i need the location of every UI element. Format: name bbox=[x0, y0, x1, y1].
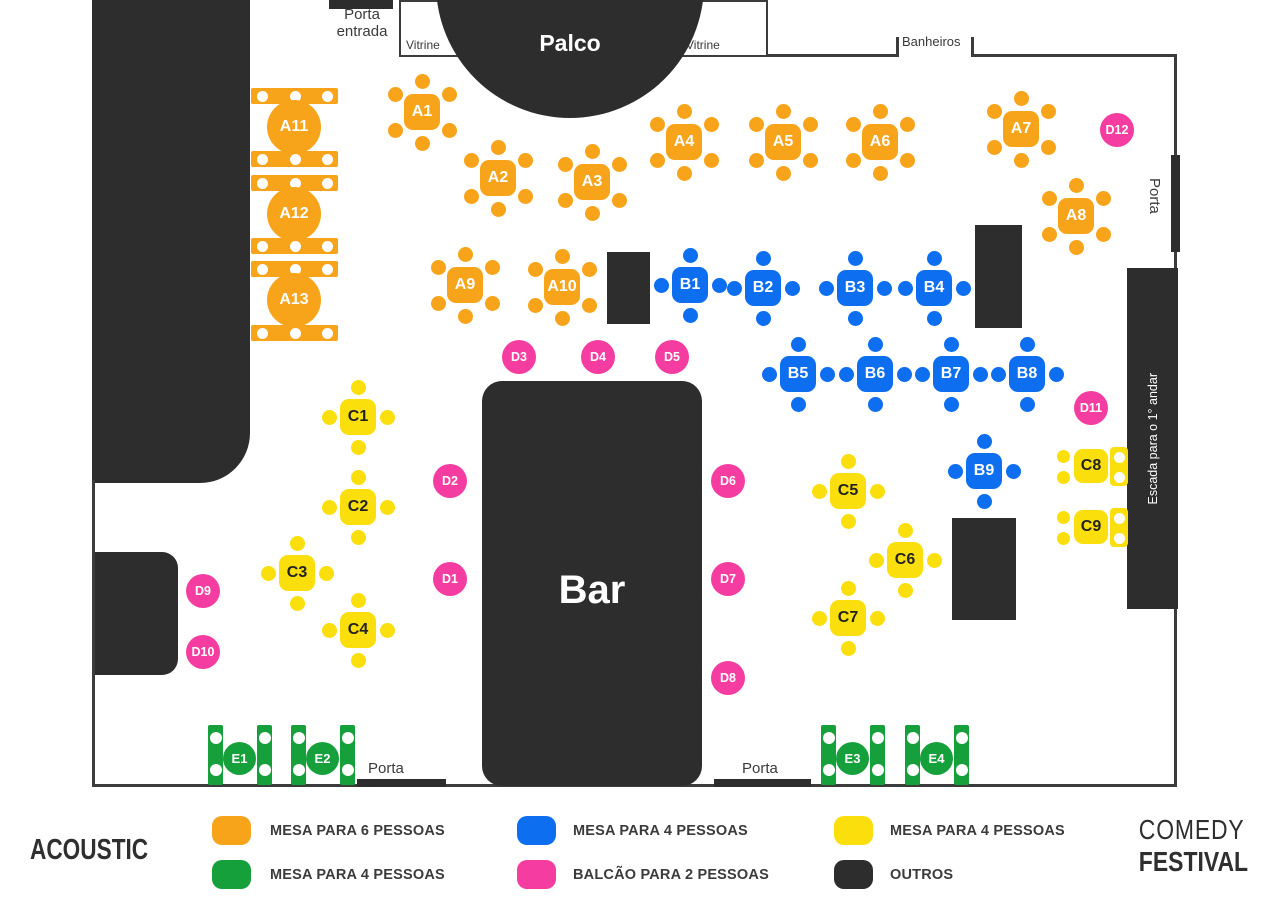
seat-hole bbox=[1114, 452, 1125, 463]
seat-dot bbox=[351, 653, 366, 668]
seat-dot bbox=[555, 311, 570, 326]
seat-dot bbox=[1049, 367, 1064, 382]
table-label: A10 bbox=[547, 278, 576, 296]
table-label: D4 bbox=[590, 350, 606, 364]
bench bbox=[821, 725, 836, 785]
seat-dot bbox=[776, 104, 791, 119]
seat-dot bbox=[900, 153, 915, 168]
counter-D6[interactable]: D6 bbox=[711, 464, 745, 498]
seat-dot bbox=[1006, 464, 1021, 479]
table-label: D5 bbox=[664, 350, 680, 364]
seat-dot bbox=[683, 308, 698, 323]
seat-dot bbox=[927, 553, 942, 568]
table-label: A13 bbox=[279, 291, 308, 309]
bench bbox=[291, 725, 306, 785]
seat-dot bbox=[870, 611, 885, 626]
seat-dot bbox=[485, 296, 500, 311]
seat-dot bbox=[612, 193, 627, 208]
seat-dot bbox=[749, 153, 764, 168]
table-A3[interactable]: A3 bbox=[574, 164, 610, 200]
table-A11[interactable]: A11 bbox=[267, 100, 321, 154]
bench bbox=[905, 725, 920, 785]
table-label: D6 bbox=[720, 474, 736, 488]
seat-dot bbox=[351, 593, 366, 608]
brand-comedy-festival: COMEDY FESTIVAL bbox=[1139, 816, 1237, 876]
legend-swatch-yellow bbox=[834, 816, 873, 845]
table-label: C1 bbox=[348, 408, 368, 426]
bench bbox=[954, 725, 969, 785]
seat-dot bbox=[898, 583, 913, 598]
seat-hole bbox=[823, 732, 835, 744]
legend-label-dark: OUTROS bbox=[890, 867, 953, 883]
table-E3[interactable]: E3 bbox=[820, 725, 886, 785]
seat-dot bbox=[677, 166, 692, 181]
seat-dot bbox=[1041, 140, 1056, 155]
table-E4[interactable]: E4 bbox=[904, 725, 970, 785]
table-label: D7 bbox=[720, 572, 736, 586]
seat-dot bbox=[944, 397, 959, 412]
seat-dot bbox=[704, 153, 719, 168]
seat-hole bbox=[907, 764, 919, 776]
seat-dot bbox=[791, 397, 806, 412]
seat-dot bbox=[898, 523, 913, 538]
table-label: A5 bbox=[773, 133, 793, 151]
table-label: C4 bbox=[348, 621, 368, 639]
table-label: D2 bbox=[442, 474, 458, 488]
table-label: C9 bbox=[1081, 518, 1101, 536]
legend-label-orange: MESA PARA 6 PESSOAS bbox=[270, 823, 445, 839]
table-label: A8 bbox=[1066, 207, 1086, 225]
seat-dot bbox=[431, 260, 446, 275]
table-label: B5 bbox=[788, 365, 808, 383]
seat-dot bbox=[1096, 227, 1111, 242]
bench bbox=[257, 725, 272, 785]
table-label: B7 bbox=[941, 365, 961, 383]
bench-row bbox=[251, 325, 338, 341]
seat-dot bbox=[841, 454, 856, 469]
seat-dot bbox=[870, 484, 885, 499]
counter-D3[interactable]: D3 bbox=[502, 340, 536, 374]
seat-hole bbox=[872, 732, 884, 744]
seat-hole bbox=[907, 732, 919, 744]
legend-label-green: MESA PARA 4 PESSOAS bbox=[270, 867, 445, 883]
seat-dot bbox=[820, 367, 835, 382]
table-A5[interactable]: A5 bbox=[765, 124, 801, 160]
counter-D8[interactable]: D8 bbox=[711, 661, 745, 695]
table-top: C8 bbox=[1074, 449, 1108, 483]
table-C2[interactable]: C2 bbox=[340, 489, 376, 525]
seat-dot bbox=[973, 367, 988, 382]
table-A8[interactable]: A8 bbox=[1058, 198, 1094, 234]
table-label: A9 bbox=[455, 276, 475, 294]
seat-dot bbox=[290, 596, 305, 611]
seat-hole bbox=[257, 154, 268, 165]
seat-dot bbox=[785, 281, 800, 296]
seat-dot bbox=[528, 262, 543, 277]
table-C1[interactable]: C1 bbox=[340, 399, 376, 435]
seat-hole bbox=[322, 241, 333, 252]
seat-dot bbox=[1020, 337, 1035, 352]
seat-dot bbox=[848, 311, 863, 326]
seat-dot bbox=[380, 623, 395, 638]
seat-dot bbox=[900, 117, 915, 132]
table-top: E3 bbox=[836, 742, 869, 775]
seat-dot bbox=[415, 74, 430, 89]
seat-dot bbox=[380, 500, 395, 515]
seat-dot bbox=[927, 251, 942, 266]
table-B3[interactable]: B3 bbox=[837, 270, 873, 306]
seat-hole bbox=[259, 764, 271, 776]
table-label: E4 bbox=[929, 751, 945, 766]
seat-dot bbox=[897, 367, 912, 382]
table-label: A1 bbox=[412, 103, 432, 121]
table-label: E3 bbox=[845, 751, 861, 766]
seat-hole bbox=[322, 91, 333, 102]
table-label: D3 bbox=[511, 350, 527, 364]
seat-dot bbox=[1042, 227, 1057, 242]
table-C4[interactable]: C4 bbox=[340, 612, 376, 648]
brand-comedy-line: COMEDY bbox=[1139, 816, 1237, 844]
seat-hole bbox=[956, 732, 968, 744]
seat-hole bbox=[322, 264, 333, 275]
table-label: E1 bbox=[232, 751, 248, 766]
table-C8[interactable]: C8 bbox=[1057, 444, 1129, 488]
seat-dot bbox=[677, 104, 692, 119]
seat-hole bbox=[290, 241, 301, 252]
seat-dot bbox=[351, 530, 366, 545]
table-label: D1 bbox=[442, 572, 458, 586]
seat-dot bbox=[654, 278, 669, 293]
seat-dot bbox=[1069, 240, 1084, 255]
legend-swatch-orange bbox=[212, 816, 251, 845]
seat-dot bbox=[388, 123, 403, 138]
table-B7[interactable]: B7 bbox=[933, 356, 969, 392]
seat-hole bbox=[257, 264, 268, 275]
seat-hole bbox=[1114, 533, 1125, 544]
seat-hole bbox=[257, 178, 268, 189]
seat-dot bbox=[927, 311, 942, 326]
seat-hole bbox=[322, 154, 333, 165]
table-label: C3 bbox=[287, 564, 307, 582]
seat-dot bbox=[846, 117, 861, 132]
seat-dot bbox=[1041, 104, 1056, 119]
counter-D11[interactable]: D11 bbox=[1074, 391, 1108, 425]
seat-dot bbox=[727, 281, 742, 296]
seat-dot bbox=[261, 566, 276, 581]
table-label: D9 bbox=[195, 584, 211, 598]
seat-dot bbox=[612, 157, 627, 172]
seat-dot bbox=[841, 641, 856, 656]
table-label: D10 bbox=[192, 645, 215, 659]
seat-dot bbox=[319, 566, 334, 581]
seat-dot bbox=[819, 281, 834, 296]
seat-dot bbox=[704, 117, 719, 132]
seat-dot bbox=[1096, 191, 1111, 206]
bench bbox=[870, 725, 885, 785]
seat-hole bbox=[290, 154, 301, 165]
bench bbox=[340, 725, 355, 785]
table-B2[interactable]: B2 bbox=[745, 270, 781, 306]
seat-dot bbox=[290, 536, 305, 551]
seat-dot bbox=[351, 440, 366, 455]
legend-swatch-pink bbox=[517, 860, 556, 889]
tables-layer: A1A2A3A4A5A6A7A8A9A10B1B2B3B4B5B6B7B8B9C… bbox=[0, 0, 1280, 904]
seat-dot bbox=[582, 298, 597, 313]
seat-dot bbox=[977, 434, 992, 449]
legend-label-blue: MESA PARA 4 PESSOAS bbox=[573, 823, 748, 839]
table-label: B1 bbox=[680, 276, 700, 294]
seat-hole bbox=[293, 732, 305, 744]
table-E2[interactable]: E2 bbox=[290, 725, 356, 785]
seat-dot bbox=[987, 104, 1002, 119]
seat-dot bbox=[431, 296, 446, 311]
seat-dot bbox=[869, 553, 884, 568]
table-B1[interactable]: B1 bbox=[672, 267, 708, 303]
counter-D5[interactable]: D5 bbox=[655, 340, 689, 374]
table-B8[interactable]: B8 bbox=[1009, 356, 1045, 392]
seat-dot bbox=[351, 380, 366, 395]
table-label: A3 bbox=[582, 173, 602, 191]
counter-D12[interactable]: D12 bbox=[1100, 113, 1134, 147]
seat-dot bbox=[762, 367, 777, 382]
bench bbox=[1110, 447, 1128, 486]
table-A10[interactable]: A10 bbox=[544, 269, 580, 305]
seat-dot bbox=[987, 140, 1002, 155]
seat-dot bbox=[650, 153, 665, 168]
table-label: A11 bbox=[280, 118, 308, 136]
table-top: E4 bbox=[920, 742, 953, 775]
table-A13[interactable]: A13 bbox=[267, 273, 321, 327]
seat-dot bbox=[650, 117, 665, 132]
seat-dot bbox=[868, 397, 883, 412]
seat-hole bbox=[342, 732, 354, 744]
table-A7[interactable]: A7 bbox=[1003, 111, 1039, 147]
table-C9[interactable]: C9 bbox=[1057, 505, 1129, 549]
table-A1[interactable]: A1 bbox=[404, 94, 440, 130]
seat-hole bbox=[257, 328, 268, 339]
seat-dot bbox=[1057, 511, 1070, 524]
counter-D4[interactable]: D4 bbox=[581, 340, 615, 374]
table-A9[interactable]: A9 bbox=[447, 267, 483, 303]
table-label: B3 bbox=[845, 279, 865, 297]
seat-dot bbox=[558, 157, 573, 172]
seat-dot bbox=[518, 189, 533, 204]
legend-swatch-green bbox=[212, 860, 251, 889]
seat-hole bbox=[259, 732, 271, 744]
seat-dot bbox=[464, 153, 479, 168]
seat-dot bbox=[1020, 397, 1035, 412]
seat-dot bbox=[442, 87, 457, 102]
counter-D1[interactable]: D1 bbox=[433, 562, 467, 596]
seat-hole bbox=[210, 732, 222, 744]
table-B6[interactable]: B6 bbox=[857, 356, 893, 392]
seat-dot bbox=[458, 309, 473, 324]
seat-dot bbox=[812, 611, 827, 626]
seat-dot bbox=[491, 140, 506, 155]
seat-dot bbox=[915, 367, 930, 382]
seat-dot bbox=[458, 247, 473, 262]
seat-dot bbox=[812, 484, 827, 499]
seat-dot bbox=[898, 281, 913, 296]
seat-dot bbox=[846, 153, 861, 168]
seat-dot bbox=[1069, 178, 1084, 193]
seat-dot bbox=[1057, 471, 1070, 484]
table-E1[interactable]: E1 bbox=[207, 725, 273, 785]
table-label: A6 bbox=[870, 133, 890, 151]
table-B9[interactable]: B9 bbox=[966, 453, 1002, 489]
seat-dot bbox=[841, 514, 856, 529]
table-label: D8 bbox=[720, 671, 736, 685]
table-top: C9 bbox=[1074, 510, 1108, 544]
table-C5[interactable]: C5 bbox=[830, 473, 866, 509]
table-label: A7 bbox=[1011, 120, 1031, 138]
seat-dot bbox=[351, 470, 366, 485]
seat-dot bbox=[491, 202, 506, 217]
table-label: B8 bbox=[1017, 365, 1037, 383]
table-A6[interactable]: A6 bbox=[862, 124, 898, 160]
seat-hole bbox=[322, 328, 333, 339]
seat-dot bbox=[791, 337, 806, 352]
seat-hole bbox=[290, 328, 301, 339]
table-A4[interactable]: A4 bbox=[666, 124, 702, 160]
seat-dot bbox=[683, 248, 698, 263]
legend-swatch-dark bbox=[834, 860, 873, 889]
seat-hole bbox=[322, 178, 333, 189]
seat-dot bbox=[873, 166, 888, 181]
seat-dot bbox=[322, 623, 337, 638]
seat-hole bbox=[293, 764, 305, 776]
table-A12[interactable]: A12 bbox=[267, 187, 321, 241]
table-C6[interactable]: C6 bbox=[887, 542, 923, 578]
seat-dot bbox=[756, 311, 771, 326]
seat-dot bbox=[582, 262, 597, 277]
seat-hole bbox=[210, 764, 222, 776]
table-label: C8 bbox=[1081, 457, 1101, 475]
seat-dot bbox=[868, 337, 883, 352]
seat-hole bbox=[257, 91, 268, 102]
table-label: A12 bbox=[279, 205, 308, 223]
seat-hole bbox=[342, 764, 354, 776]
seat-dot bbox=[1014, 91, 1029, 106]
legend-label-yellow: MESA PARA 4 PESSOAS bbox=[890, 823, 1065, 839]
legend-swatch-blue bbox=[517, 816, 556, 845]
table-top: E2 bbox=[306, 742, 339, 775]
table-label: B9 bbox=[974, 462, 994, 480]
seat-dot bbox=[991, 367, 1006, 382]
brand-festival-line: FESTIVAL bbox=[1139, 848, 1237, 876]
seat-dot bbox=[977, 494, 992, 509]
counter-D7[interactable]: D7 bbox=[711, 562, 745, 596]
seat-dot bbox=[873, 104, 888, 119]
table-label: B4 bbox=[924, 279, 944, 297]
table-label: D12 bbox=[1106, 123, 1129, 137]
seat-dot bbox=[749, 117, 764, 132]
seat-dot bbox=[712, 278, 727, 293]
seat-dot bbox=[848, 251, 863, 266]
table-label: B6 bbox=[865, 365, 885, 383]
seat-dot bbox=[841, 581, 856, 596]
seat-dot bbox=[776, 166, 791, 181]
brand-acoustic: ACOUSTIC bbox=[30, 834, 148, 867]
counter-D2[interactable]: D2 bbox=[433, 464, 467, 498]
seat-dot bbox=[518, 153, 533, 168]
table-A2[interactable]: A2 bbox=[480, 160, 516, 196]
seat-dot bbox=[380, 410, 395, 425]
seat-dot bbox=[1042, 191, 1057, 206]
seat-dot bbox=[322, 410, 337, 425]
table-C7[interactable]: C7 bbox=[830, 600, 866, 636]
seat-dot bbox=[558, 193, 573, 208]
legend-label-pink: BALCÃO PARA 2 PESSOAS bbox=[573, 867, 769, 883]
seat-hole bbox=[823, 764, 835, 776]
bench bbox=[208, 725, 223, 785]
seat-dot bbox=[585, 144, 600, 159]
seat-dot bbox=[528, 298, 543, 313]
seat-dot bbox=[877, 281, 892, 296]
seat-hole bbox=[1114, 513, 1125, 524]
seat-dot bbox=[803, 117, 818, 132]
seat-dot bbox=[442, 123, 457, 138]
counter-D10[interactable]: D10 bbox=[186, 635, 220, 669]
seat-dot bbox=[756, 251, 771, 266]
table-label: C6 bbox=[895, 551, 915, 569]
table-label: D11 bbox=[1080, 401, 1102, 415]
table-label: C7 bbox=[838, 609, 858, 627]
table-label: C2 bbox=[348, 498, 368, 516]
bench bbox=[1110, 508, 1128, 547]
table-B4[interactable]: B4 bbox=[916, 270, 952, 306]
seat-dot bbox=[1014, 153, 1029, 168]
seat-hole bbox=[872, 764, 884, 776]
seat-hole bbox=[257, 241, 268, 252]
floor-plan: Vitrine Vitrine Palco Banheiros Porta en… bbox=[0, 0, 1280, 904]
counter-D9[interactable]: D9 bbox=[186, 574, 220, 608]
table-label: A4 bbox=[674, 133, 694, 151]
seat-dot bbox=[415, 136, 430, 151]
table-label: B2 bbox=[753, 279, 773, 297]
seat-dot bbox=[388, 87, 403, 102]
table-C3[interactable]: C3 bbox=[279, 555, 315, 591]
table-top: E1 bbox=[223, 742, 256, 775]
seat-dot bbox=[803, 153, 818, 168]
seat-dot bbox=[944, 337, 959, 352]
seat-hole bbox=[1114, 472, 1125, 483]
seat-dot bbox=[1057, 450, 1070, 463]
seat-hole bbox=[956, 764, 968, 776]
seat-dot bbox=[585, 206, 600, 221]
seat-dot bbox=[485, 260, 500, 275]
seat-dot bbox=[956, 281, 971, 296]
seat-dot bbox=[464, 189, 479, 204]
seat-dot bbox=[948, 464, 963, 479]
seat-dot bbox=[839, 367, 854, 382]
table-label: C5 bbox=[838, 482, 858, 500]
table-label: E2 bbox=[315, 751, 331, 766]
seat-dot bbox=[1057, 532, 1070, 545]
table-label: A2 bbox=[488, 169, 508, 187]
table-B5[interactable]: B5 bbox=[780, 356, 816, 392]
seat-dot bbox=[555, 249, 570, 264]
seat-dot bbox=[322, 500, 337, 515]
